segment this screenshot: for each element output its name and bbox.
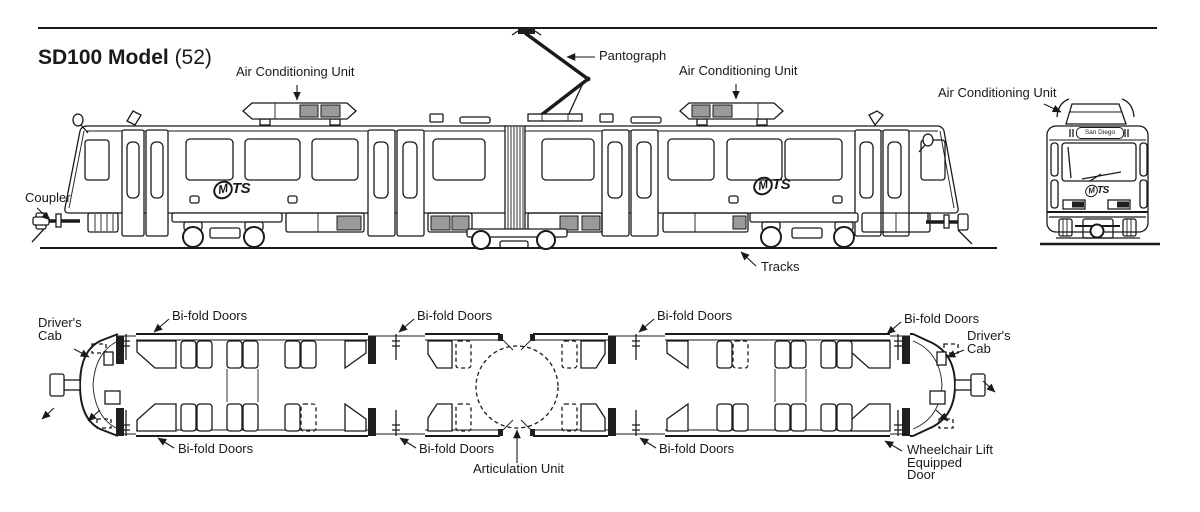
roof-light-left xyxy=(127,111,141,125)
front-view-drawing xyxy=(1047,99,1148,238)
roof-light-right xyxy=(869,111,883,125)
label-coupler: Coupler xyxy=(25,192,71,205)
label-bifold-top-mid-right: Bi-fold Doors xyxy=(657,310,732,323)
front-bogie xyxy=(172,213,282,247)
front-windshield xyxy=(85,140,109,180)
label-bifold-top-mid-left: Bi-fold Doors xyxy=(417,310,492,323)
label-drivers-cab-right: Driver's Cab xyxy=(967,330,1025,355)
drivers-cab-right-drawing xyxy=(930,344,958,428)
mts-logo-m: M xyxy=(212,179,234,202)
label-articulation-unit: Articulation Unit xyxy=(473,463,564,476)
side-door-a xyxy=(122,130,168,236)
label-bifold-bottom-mid-right: Bi-fold Doors xyxy=(659,443,734,456)
floor-plan-drawing xyxy=(42,334,995,436)
mts-logo-m: M xyxy=(752,175,774,198)
label-ac-unit-right: Air Conditioning Unit xyxy=(679,65,798,78)
rear-coupler xyxy=(926,213,972,244)
side-windows-left-car xyxy=(186,139,485,180)
diagram-canvas xyxy=(0,0,1200,512)
mts-logo-m: M xyxy=(1084,183,1098,198)
front-coupler xyxy=(32,213,80,242)
side-door-c xyxy=(602,130,658,236)
center-bogie xyxy=(467,229,567,249)
floor-plan-right-nose xyxy=(913,334,955,436)
mts-logo-front: MTS xyxy=(1085,185,1109,197)
label-ac-unit-front: Air Conditioning Unit xyxy=(938,87,1057,100)
label-ac-unit-left: Air Conditioning Unit xyxy=(236,66,355,79)
front-ac-unit xyxy=(1066,104,1126,124)
label-wheelchair-door: Wheelchair Lift Equipped Door xyxy=(907,444,993,482)
page-title: SD100 Model (52) xyxy=(38,46,212,70)
track-line xyxy=(40,244,1160,248)
floor-plan-left-nose xyxy=(80,334,118,436)
diagram-page: SD100 Model (52) Air Conditioning Unit P… xyxy=(0,0,1200,512)
side-door-d xyxy=(855,130,909,236)
articulation-bellows xyxy=(505,126,525,235)
mts-logo-ts: TS xyxy=(772,176,790,193)
floor-plan-coupler-right xyxy=(955,374,995,396)
side-windows-right-car xyxy=(542,139,842,180)
label-bifold-bottom-left: Bi-fold Doors xyxy=(178,443,253,456)
destination-sign: San Diego xyxy=(1076,127,1124,139)
label-bifold-bottom-mid-left: Bi-fold Doors xyxy=(419,443,494,456)
mts-logo-ts: TS xyxy=(232,180,250,197)
label-tracks: Tracks xyxy=(761,261,800,274)
fleet-count: (52) xyxy=(175,46,212,69)
ac-unit-left-drawing xyxy=(243,103,356,125)
passenger-seats-bottom xyxy=(181,404,852,431)
label-drivers-cab-left: Driver's Cab xyxy=(38,317,96,342)
ac-unit-right-drawing xyxy=(680,103,783,125)
label-bifold-top-left: Bi-fold Doors xyxy=(172,310,247,323)
label-pantograph: Pantograph xyxy=(599,50,666,63)
articulation-unit-drawing xyxy=(476,334,558,436)
side-door-b xyxy=(368,130,424,236)
passenger-seats-top xyxy=(181,341,852,368)
floor-plan-coupler-left xyxy=(42,374,80,419)
rear-bogie xyxy=(750,213,858,247)
model-name: SD100 Model xyxy=(38,46,169,69)
mts-logo-right: MTS xyxy=(753,176,790,195)
label-bifold-top-right: Bi-fold Doors xyxy=(904,313,979,326)
mts-logo-ts: TS xyxy=(1097,185,1109,196)
pantograph-drawing xyxy=(512,28,591,121)
mts-logo-left: MTS xyxy=(213,180,250,199)
